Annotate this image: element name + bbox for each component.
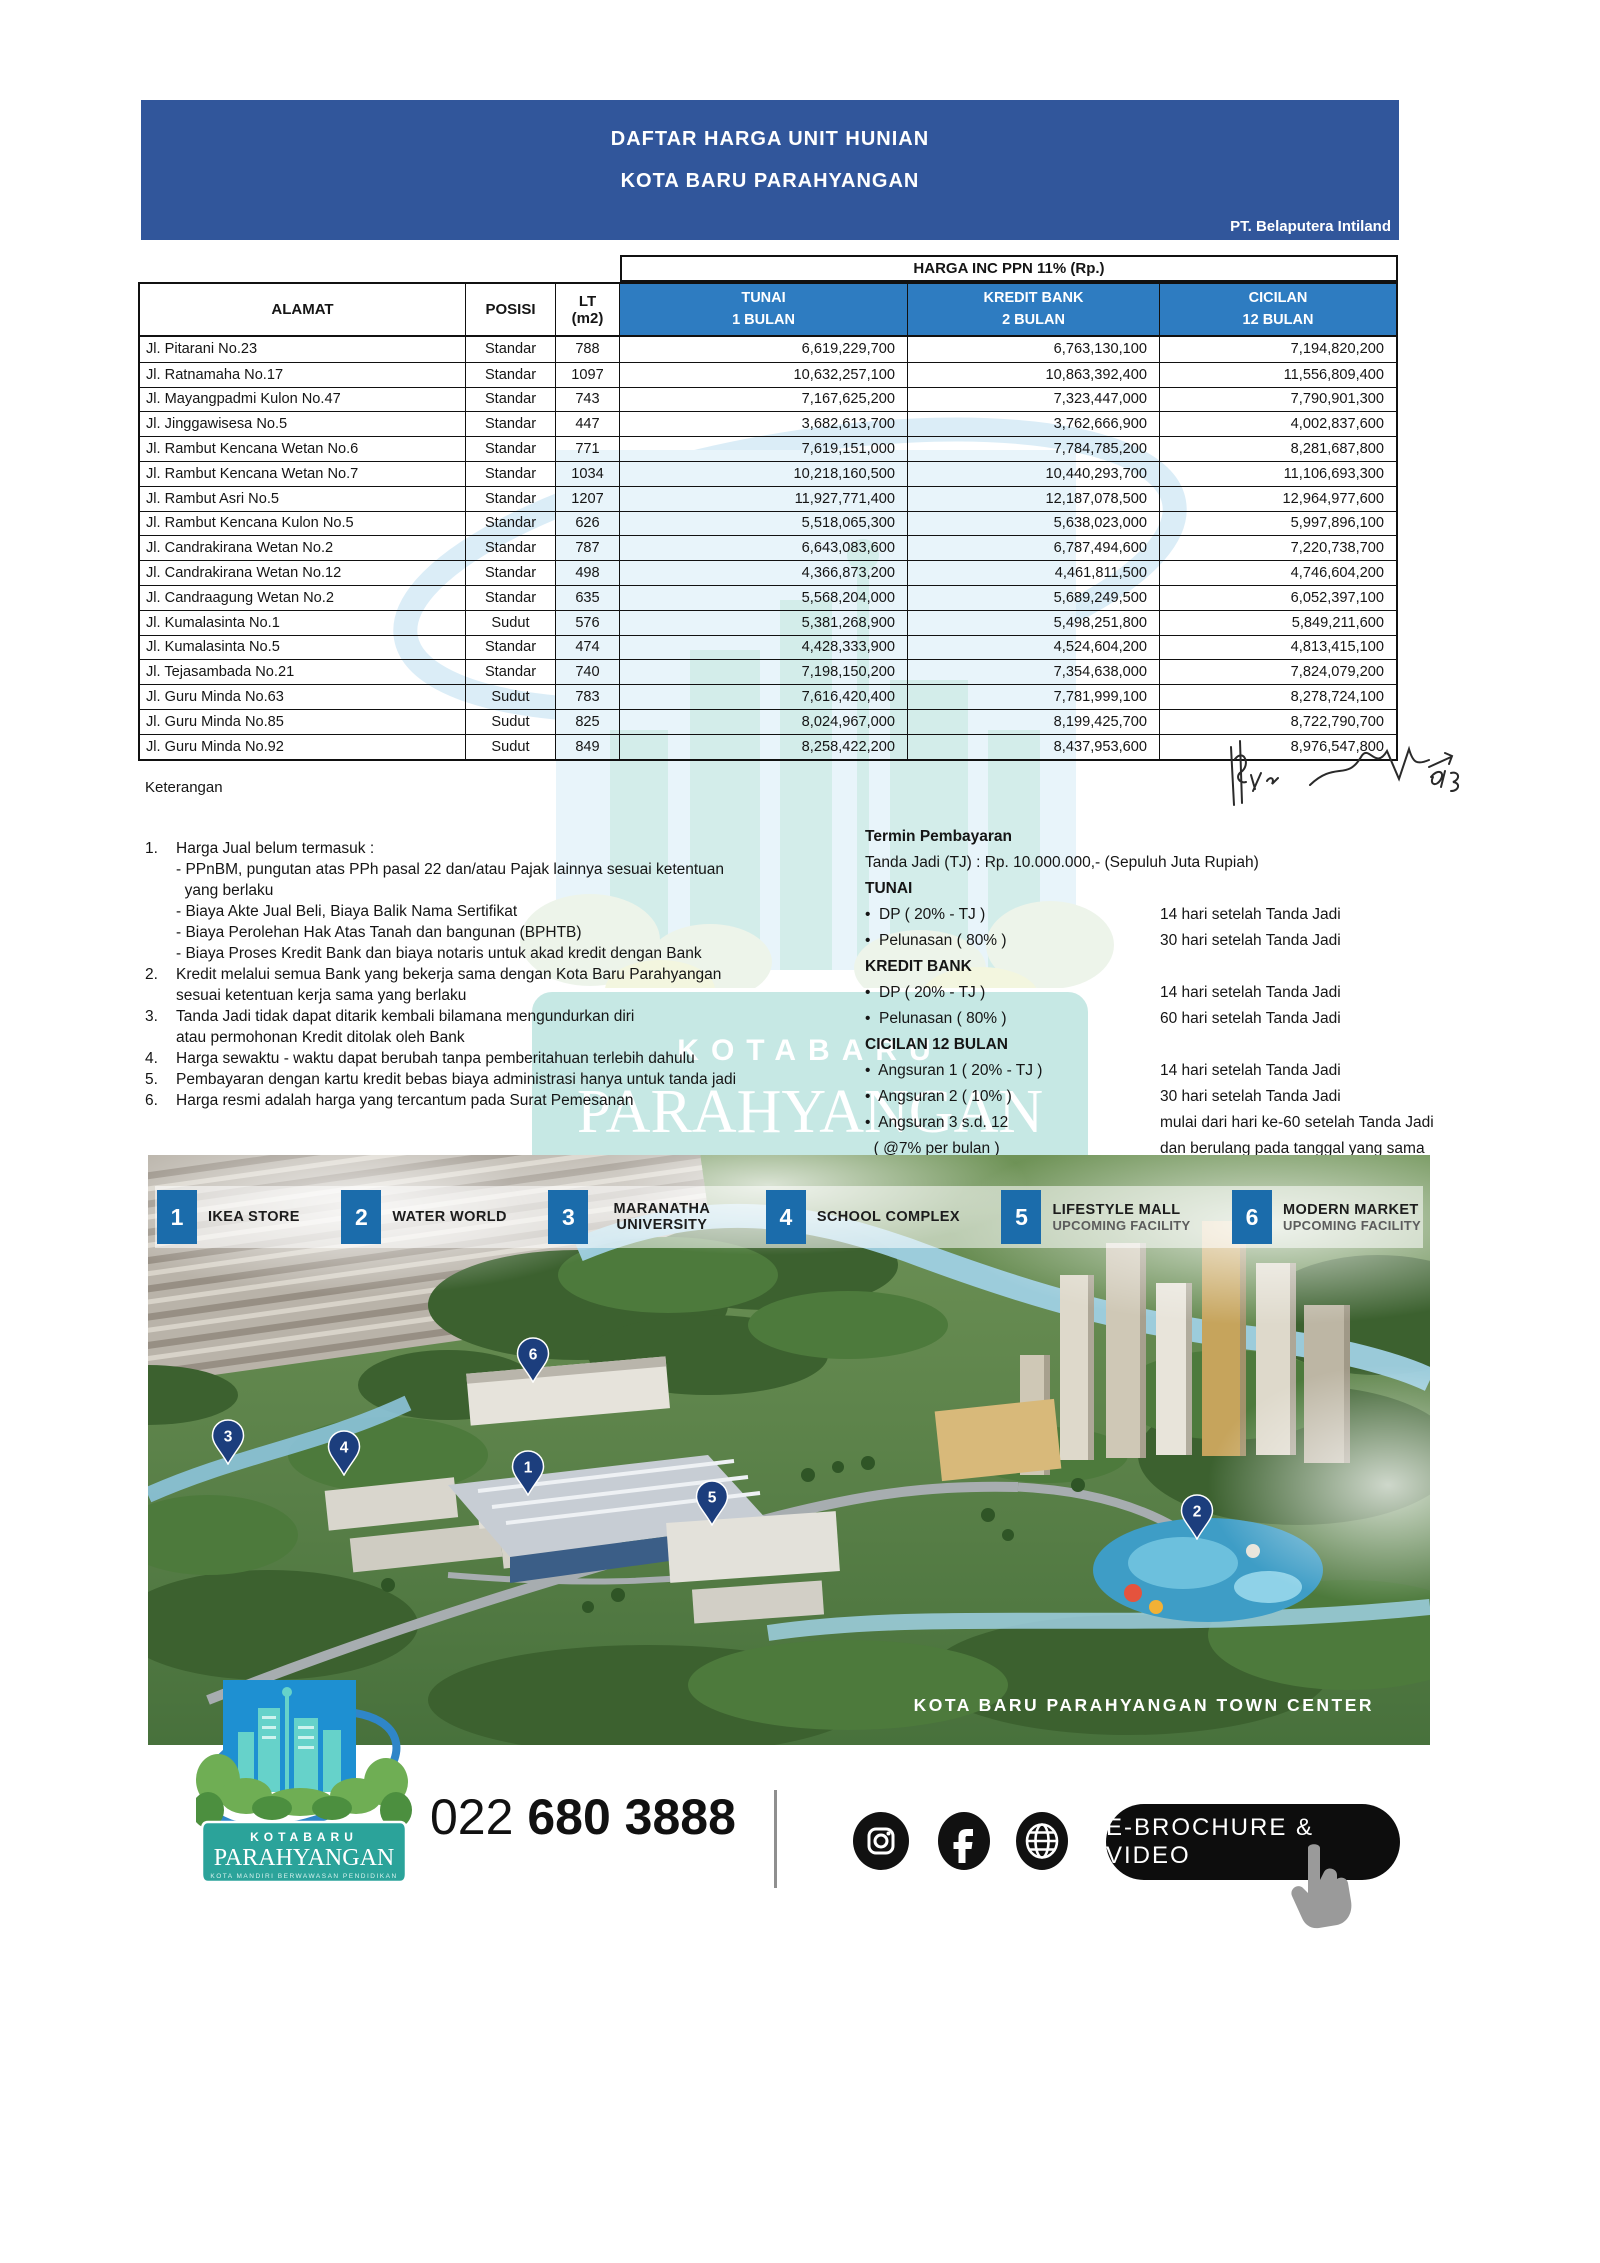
facility-item: 2WATER WORLD [341,1190,506,1244]
cell-cicilan: 4,746,604,200 [1160,561,1396,585]
facility-number-tile: 1 [157,1190,197,1244]
termin-item: • Pelunasan ( 80% )60 hari setelah Tanda… [865,1006,1465,1032]
note-line: - Biaya Akte Jual Beli, Biaya Balik Nama… [176,901,724,922]
facility-labels: SCHOOL COMPLEX [817,1209,960,1225]
map-pin-4: 4 [327,1430,361,1481]
facility-subtitle: UPCOMING FACILITY [1283,1218,1421,1233]
cell-posisi: Sudut [466,710,556,734]
tanda-jadi-line: Tanda Jadi (TJ) : Rp. 10.000.000,- (Sepu… [865,850,1465,876]
facility-labels: MODERN MARKETUPCOMING FACILITY [1283,1202,1421,1233]
cell-cicilan: 8,722,790,700 [1160,710,1396,734]
termin-timing-line: 14 hari setelah Tanda Jadi [1160,1058,1341,1084]
cell-lt: 626 [556,512,620,536]
cell-lt: 474 [556,636,620,660]
cell-tunai: 10,632,257,100 [620,363,908,387]
cell-cicilan: 4,002,837,600 [1160,412,1396,436]
note-line: yang berlaku [176,880,724,901]
company-name: PT. Belaputera Intiland [1230,218,1391,235]
svg-text:1: 1 [524,1460,533,1477]
phone-prefix: 022 [430,1789,513,1845]
cell-kredit: 7,784,785,200 [908,437,1160,461]
col-header-lt-line1: LT [579,293,596,310]
cell-kredit: 6,787,494,600 [908,536,1160,560]
note-lines: Harga Jual belum termasuk :- PPnBM, pung… [176,838,724,964]
note-number: 2. [145,964,176,1006]
termin-group-heading: KREDIT BANK [865,954,1465,980]
cell-posisi: Standar [466,363,556,387]
town-center-aerial-map: 1IKEA STORE2WATER WORLD3MARANATHA UNIVER… [148,1155,1430,1745]
cell-lt: 635 [556,586,620,610]
cell-posisi: Standar [466,437,556,461]
cell-alamat: Jl. Guru Minda No.85 [140,710,466,734]
cell-alamat: Jl. Pitarani No.23 [140,337,466,362]
note-line: Kredit melalui semua Bank yang bekerja s… [176,964,721,985]
cell-tunai: 7,619,151,000 [620,437,908,461]
note-line: - Biaya Proses Kredit Bank dan biaya not… [176,943,724,964]
facility-item: 5LIFESTYLE MALLUPCOMING FACILITY [1001,1190,1190,1244]
note-item: 3.Tanda Jadi tidak dapat ditarik kembali… [145,1006,860,1048]
cell-alamat: Jl. Rambut Kencana Kulon No.5 [140,512,466,536]
cell-cicilan: 4,813,415,100 [1160,636,1396,660]
map-pin-2: 2 [1180,1494,1214,1545]
logo-line1: KOTABARU [250,1830,358,1844]
note-line: Harga sewaktu - waktu dapat berubah tanp… [176,1048,695,1069]
footer-divider [774,1790,777,1888]
cell-posisi: Sudut [466,735,556,759]
cell-cicilan: 12,964,977,600 [1160,487,1396,511]
cell-posisi: Standar [466,337,556,362]
svg-text:3: 3 [224,1429,233,1446]
termin-timing-line: 30 hari setelah Tanda Jadi [1160,928,1341,954]
col-header-cicilan-line1: CICILAN [1249,290,1308,306]
cell-alamat: Jl. Rambut Asri No.5 [140,487,466,511]
col-header-cicilan-line2: 12 BULAN [1243,312,1314,328]
cell-kredit: 7,781,999,100 [908,685,1160,709]
facility-number-tile: 4 [766,1190,806,1244]
cell-lt: 1097 [556,363,620,387]
map-pin-3: 3 [211,1419,245,1470]
facility-labels: IKEA STORE [208,1209,300,1225]
hand-cursor-icon [1282,1842,1356,1938]
table-row: Jl. Pitarani No.23Standar7886,619,229,70… [140,337,1396,362]
cell-kredit: 10,863,392,400 [908,363,1160,387]
cell-lt: 849 [556,735,620,759]
facebook-icon[interactable] [935,1812,993,1870]
cell-alamat: Jl. Rambut Kencana Wetan No.6 [140,437,466,461]
cell-lt: 787 [556,536,620,560]
note-lines: Pembayaran dengan kartu kredit bebas bia… [176,1069,736,1090]
price-list-document: KOTABARU PARAHYANGAN KOTA MANDIRI BERWAW… [0,0,1600,2263]
page-title-line1: DAFTAR HARGA UNIT HUNIAN [141,128,1399,151]
termin-timing-line: 60 hari setelah Tanda Jadi [1160,1006,1341,1032]
website-globe-icon[interactable] [1013,1812,1071,1870]
cell-posisi: Standar [466,412,556,436]
svg-text:2: 2 [1193,1504,1202,1521]
termin-groups: TUNAI• DP ( 20% - TJ )14 hari setelah Ta… [865,876,1465,1162]
facility-name: IKEA STORE [208,1209,300,1225]
cell-lt: 783 [556,685,620,709]
cell-kredit: 7,354,638,000 [908,660,1160,684]
cell-cicilan: 7,824,079,200 [1160,660,1396,684]
table-row: Jl. Rambut Asri No.5Standar120711,927,77… [140,486,1396,511]
col-header-lt: LT (m2) [556,284,620,335]
page-title-line2: KOTA BARU PARAHYANGAN [141,170,1399,193]
table-row: Jl. Candrakirana Wetan No.12Standar4984,… [140,560,1396,585]
termin-group-heading: CICILAN 12 BULAN [865,1032,1465,1058]
facility-item: 6MODERN MARKETUPCOMING FACILITY [1232,1190,1421,1244]
note-number: 5. [145,1069,176,1090]
note-lines: Tanda Jadi tidak dapat ditarik kembali b… [176,1006,634,1048]
cell-cicilan: 6,052,397,100 [1160,586,1396,610]
note-item: 1.Harga Jual belum termasuk :- PPnBM, pu… [145,838,860,964]
note-lines: Harga sewaktu - waktu dapat berubah tanp… [176,1048,695,1069]
cell-posisi: Sudut [466,685,556,709]
table-row: Jl. Candraagung Wetan No.2Standar6355,56… [140,585,1396,610]
note-line: sesuai ketentuan kerja sama yang berlaku [176,985,721,1006]
facility-number-tile: 5 [1001,1190,1041,1244]
facility-labels: WATER WORLD [392,1209,506,1225]
harga-header: HARGA INC PPN 11% (Rp.) [620,255,1398,282]
logo-line2: PARAHYANGAN [214,1845,394,1871]
termin-item: • Angsuran 2 ( 10% )30 hari setelah Tand… [865,1084,1465,1110]
cell-alamat: Jl. Mayangpadmi Kulon No.47 [140,388,466,412]
cell-posisi: Sudut [466,611,556,635]
cell-tunai: 7,198,150,200 [620,660,908,684]
cell-kredit: 4,461,811,500 [908,561,1160,585]
cell-cicilan: 11,106,693,300 [1160,462,1396,486]
col-header-tunai-line1: TUNAI [741,290,785,306]
note-lines: Harga resmi adalah harga yang tercantum … [176,1090,634,1111]
col-header-cicilan: CICILAN 12 BULAN [1160,284,1396,335]
cell-cicilan: 7,220,738,700 [1160,536,1396,560]
termin-timing-line: 14 hari setelah Tanda Jadi [1160,980,1341,1006]
cell-kredit: 7,323,447,000 [908,388,1160,412]
cell-kredit: 5,638,023,000 [908,512,1160,536]
table-row: Jl. Mayangpadmi Kulon No.47Standar7437,1… [140,387,1396,412]
cell-tunai: 5,518,065,300 [620,512,908,536]
termin-timing-line: 14 hari setelah Tanda Jadi [1160,902,1341,928]
note-item: 5.Pembayaran dengan kartu kredit bebas b… [145,1069,860,1090]
cell-lt: 825 [556,710,620,734]
cell-lt: 447 [556,412,620,436]
cell-lt: 1034 [556,462,620,486]
facility-name: SCHOOL COMPLEX [817,1209,960,1225]
table-row: Jl. Rambut Kencana Kulon No.5Standar6265… [140,511,1396,536]
termin-item: • DP ( 20% - TJ )14 hari setelah Tanda J… [865,902,1465,928]
cell-kredit: 10,440,293,700 [908,462,1160,486]
cell-tunai: 4,428,333,900 [620,636,908,660]
cell-alamat: Jl. Candrakirana Wetan No.12 [140,561,466,585]
signature [1215,733,1465,825]
instagram-icon[interactable] [852,1812,910,1870]
cell-alamat: Jl. Kumalasinta No.5 [140,636,466,660]
note-item: 6.Harga resmi adalah harga yang tercantu… [145,1090,860,1111]
cell-posisi: Standar [466,660,556,684]
logo-line3: KOTA MANDIRI BERWAWASAN PENDIDIKAN [210,1873,397,1880]
cell-posisi: Standar [466,512,556,536]
note-line: Tanda Jadi tidak dapat ditarik kembali b… [176,1006,634,1027]
cell-lt: 743 [556,388,620,412]
termin-item: • Angsuran 1 ( 20% - TJ )14 hari setelah… [865,1058,1465,1084]
facility-item: 3MARANATHA UNIVERSITY [548,1190,724,1244]
price-table-body: Jl. Pitarani No.23Standar7886,619,229,70… [138,337,1398,761]
table-row: Jl. Tejasambada No.21Standar7407,198,150… [140,659,1396,684]
note-item: 2.Kredit melalui semua Bank yang bekerja… [145,964,860,1006]
cell-alamat: Jl. Jinggawisesa No.5 [140,412,466,436]
cell-alamat: Jl. Candrakirana Wetan No.2 [140,536,466,560]
svg-text:6: 6 [529,1347,538,1364]
cell-posisi: Standar [466,462,556,486]
cell-kredit: 8,199,425,700 [908,710,1160,734]
cell-alamat: Jl. Kumalasinta No.1 [140,611,466,635]
termin-item-timing: 14 hari setelah Tanda Jadi [1160,902,1341,928]
termin-timing-line: 30 hari setelah Tanda Jadi [1160,1084,1341,1110]
facility-name: MARANATHA UNIVERSITY [599,1201,724,1233]
cell-tunai: 7,167,625,200 [620,388,908,412]
note-line: - Biaya Perolehan Hak Atas Tanah dan ban… [176,922,724,943]
col-header-kredit: KREDIT BANK 2 BULAN [908,284,1160,335]
cell-posisi: Standar [466,388,556,412]
facility-subtitle: UPCOMING FACILITY [1052,1218,1190,1233]
cell-cicilan: 5,997,896,100 [1160,512,1396,536]
cell-posisi: Standar [466,536,556,560]
map-pin-6: 6 [516,1337,550,1388]
cell-cicilan: 7,194,820,200 [1160,337,1396,362]
termin-item-timing: 60 hari setelah Tanda Jadi [1160,1006,1341,1032]
cell-tunai: 6,643,083,600 [620,536,908,560]
facility-name: LIFESTYLE MALL [1052,1202,1190,1218]
cell-cicilan: 7,790,901,300 [1160,388,1396,412]
svg-text:4: 4 [340,1440,349,1457]
cell-cicilan: 11,556,809,400 [1160,363,1396,387]
table-row: Jl. Candrakirana Wetan No.2Standar7876,6… [140,535,1396,560]
col-header-alamat: ALAMAT [140,284,466,335]
facility-number-tile: 2 [341,1190,381,1244]
col-header-tunai: TUNAI 1 BULAN [620,284,908,335]
map-pin-5: 5 [695,1480,729,1531]
termin-group-heading: TUNAI [865,876,1465,902]
cell-tunai: 5,568,204,000 [620,586,908,610]
cell-alamat: Jl. Tejasambada No.21 [140,660,466,684]
facility-labels: LIFESTYLE MALLUPCOMING FACILITY [1052,1202,1190,1233]
table-row: Jl. Rambut Kencana Wetan No.7Standar1034… [140,461,1396,486]
cell-cicilan: 5,849,211,600 [1160,611,1396,635]
cell-posisi: Standar [466,487,556,511]
table-row: Jl. Kumalasinta No.1Sudut5765,381,268,90… [140,610,1396,635]
note-line: Harga resmi adalah harga yang tercantum … [176,1090,634,1111]
cell-cicilan: 8,278,724,100 [1160,685,1396,709]
cell-tunai: 6,619,229,700 [620,337,908,362]
cell-kredit: 5,689,249,500 [908,586,1160,610]
cell-kredit: 3,762,666,900 [908,412,1160,436]
facility-number-tile: 6 [1232,1190,1272,1244]
table-row: Jl. Guru Minda No.92Sudut8498,258,422,20… [140,734,1396,759]
termin-item: • Pelunasan ( 80% )30 hari setelah Tanda… [865,928,1465,954]
cell-kredit: 4,524,604,200 [908,636,1160,660]
cell-lt: 576 [556,611,620,635]
cell-tunai: 5,381,268,900 [620,611,908,635]
cell-lt: 788 [556,337,620,362]
facility-name: MODERN MARKET [1283,1202,1421,1218]
col-header-lt-line2: (m2) [572,310,604,327]
cell-kredit: 12,187,078,500 [908,487,1160,511]
termin-item: • DP ( 20% - TJ )14 hari setelah Tanda J… [865,980,1465,1006]
cell-tunai: 8,258,422,200 [620,735,908,759]
map-pin-1: 1 [511,1450,545,1501]
cell-posisi: Standar [466,586,556,610]
svg-text:5: 5 [708,1490,717,1507]
kotabaru-parahyangan-logo: KOTABARU PARAHYANGAN KOTA MANDIRI BERWAW… [196,1680,412,1892]
table-row: Jl. Guru Minda No.63Sudut7837,616,420,40… [140,684,1396,709]
col-header-kredit-line1: KREDIT BANK [984,290,1084,306]
cell-kredit: 6,763,130,100 [908,337,1160,362]
table-row: Jl. Jinggawisesa No.5Standar4473,682,613… [140,411,1396,436]
facility-labels: MARANATHA UNIVERSITY [599,1201,724,1233]
note-line: Pembayaran dengan kartu kredit bebas bia… [176,1069,736,1090]
cell-lt: 740 [556,660,620,684]
col-header-posisi: POSISI [466,284,556,335]
cell-alamat: Jl. Candraagung Wetan No.2 [140,586,466,610]
title-banner: DAFTAR HARGA UNIT HUNIAN KOTA BARU PARAH… [141,100,1399,240]
keterangan-notes: 1.Harga Jual belum termasuk :- PPnBM, pu… [145,838,860,1111]
phone-number: 022 680 3888 [430,1788,736,1846]
note-number: 6. [145,1090,176,1111]
termin-item-timing: 14 hari setelah Tanda Jadi [1160,1058,1341,1084]
table-row: Jl. Guru Minda No.85Sudut8258,024,967,00… [140,709,1396,734]
cell-cicilan: 8,281,687,800 [1160,437,1396,461]
facility-item: 1IKEA STORE [157,1190,300,1244]
cell-alamat: Jl. Rambut Kencana Wetan No.7 [140,462,466,486]
termin-item-timing: 14 hari setelah Tanda Jadi [1160,980,1341,1006]
cell-kredit: 8,437,953,600 [908,735,1160,759]
termin-item-timing: 30 hari setelah Tanda Jadi [1160,1084,1341,1110]
cell-lt: 1207 [556,487,620,511]
cell-lt: 498 [556,561,620,585]
termin-timing-line: mulai dari hari ke-60 setelah Tanda Jadi [1160,1110,1434,1136]
cell-tunai: 7,616,420,400 [620,685,908,709]
cell-posisi: Standar [466,636,556,660]
price-table-header: ALAMAT POSISI LT (m2) TUNAI 1 BULAN KRED… [138,282,1398,337]
table-row: Jl. Kumalasinta No.5Standar4744,428,333,… [140,635,1396,660]
cell-kredit: 5,498,251,800 [908,611,1160,635]
note-line: atau permohonan Kredit ditolak oleh Bank [176,1027,634,1048]
note-number: 1. [145,838,176,964]
termin-pembayaran: Termin Pembayaran Tanda Jadi (TJ) : Rp. … [865,824,1465,1162]
cell-tunai: 11,927,771,400 [620,487,908,511]
cell-lt: 771 [556,437,620,461]
cell-posisi: Standar [466,561,556,585]
note-lines: Kredit melalui semua Bank yang bekerja s… [176,964,721,1006]
cell-tunai: 8,024,967,000 [620,710,908,734]
cell-tunai: 10,218,160,500 [620,462,908,486]
cell-alamat: Jl. Guru Minda No.63 [140,685,466,709]
facility-item: 4SCHOOL COMPLEX [766,1190,960,1244]
note-item: 4.Harga sewaktu - waktu dapat berubah ta… [145,1048,860,1069]
col-header-tunai-line2: 1 BULAN [732,312,795,328]
facility-number-tile: 3 [548,1190,588,1244]
note-line: Harga Jual belum termasuk : [176,838,724,859]
facility-legend-bar: 1IKEA STORE2WATER WORLD3MARANATHA UNIVER… [155,1186,1423,1248]
facility-name: WATER WORLD [392,1209,506,1225]
table-row: Jl. Rambut Kencana Wetan No.6Standar7717… [140,436,1396,461]
cell-tunai: 3,682,613,700 [620,412,908,436]
phone-main: 680 3888 [527,1789,736,1845]
map-caption: KOTA BARU PARAHYANGAN TOWN CENTER [914,1695,1374,1716]
termin-title: Termin Pembayaran [865,824,1465,850]
note-number: 3. [145,1006,176,1048]
termin-item-timing: 30 hari setelah Tanda Jadi [1160,928,1341,954]
table-row: Jl. Ratnamaha No.17Standar109710,632,257… [140,362,1396,387]
col-header-kredit-line2: 2 BULAN [1002,312,1065,328]
cell-alamat: Jl. Guru Minda No.92 [140,735,466,759]
note-number: 4. [145,1048,176,1069]
keterangan-title: Keterangan [145,779,223,796]
cell-alamat: Jl. Ratnamaha No.17 [140,363,466,387]
note-line: - PPnBM, pungutan atas PPh pasal 22 dan/… [176,859,724,880]
cell-tunai: 4,366,873,200 [620,561,908,585]
